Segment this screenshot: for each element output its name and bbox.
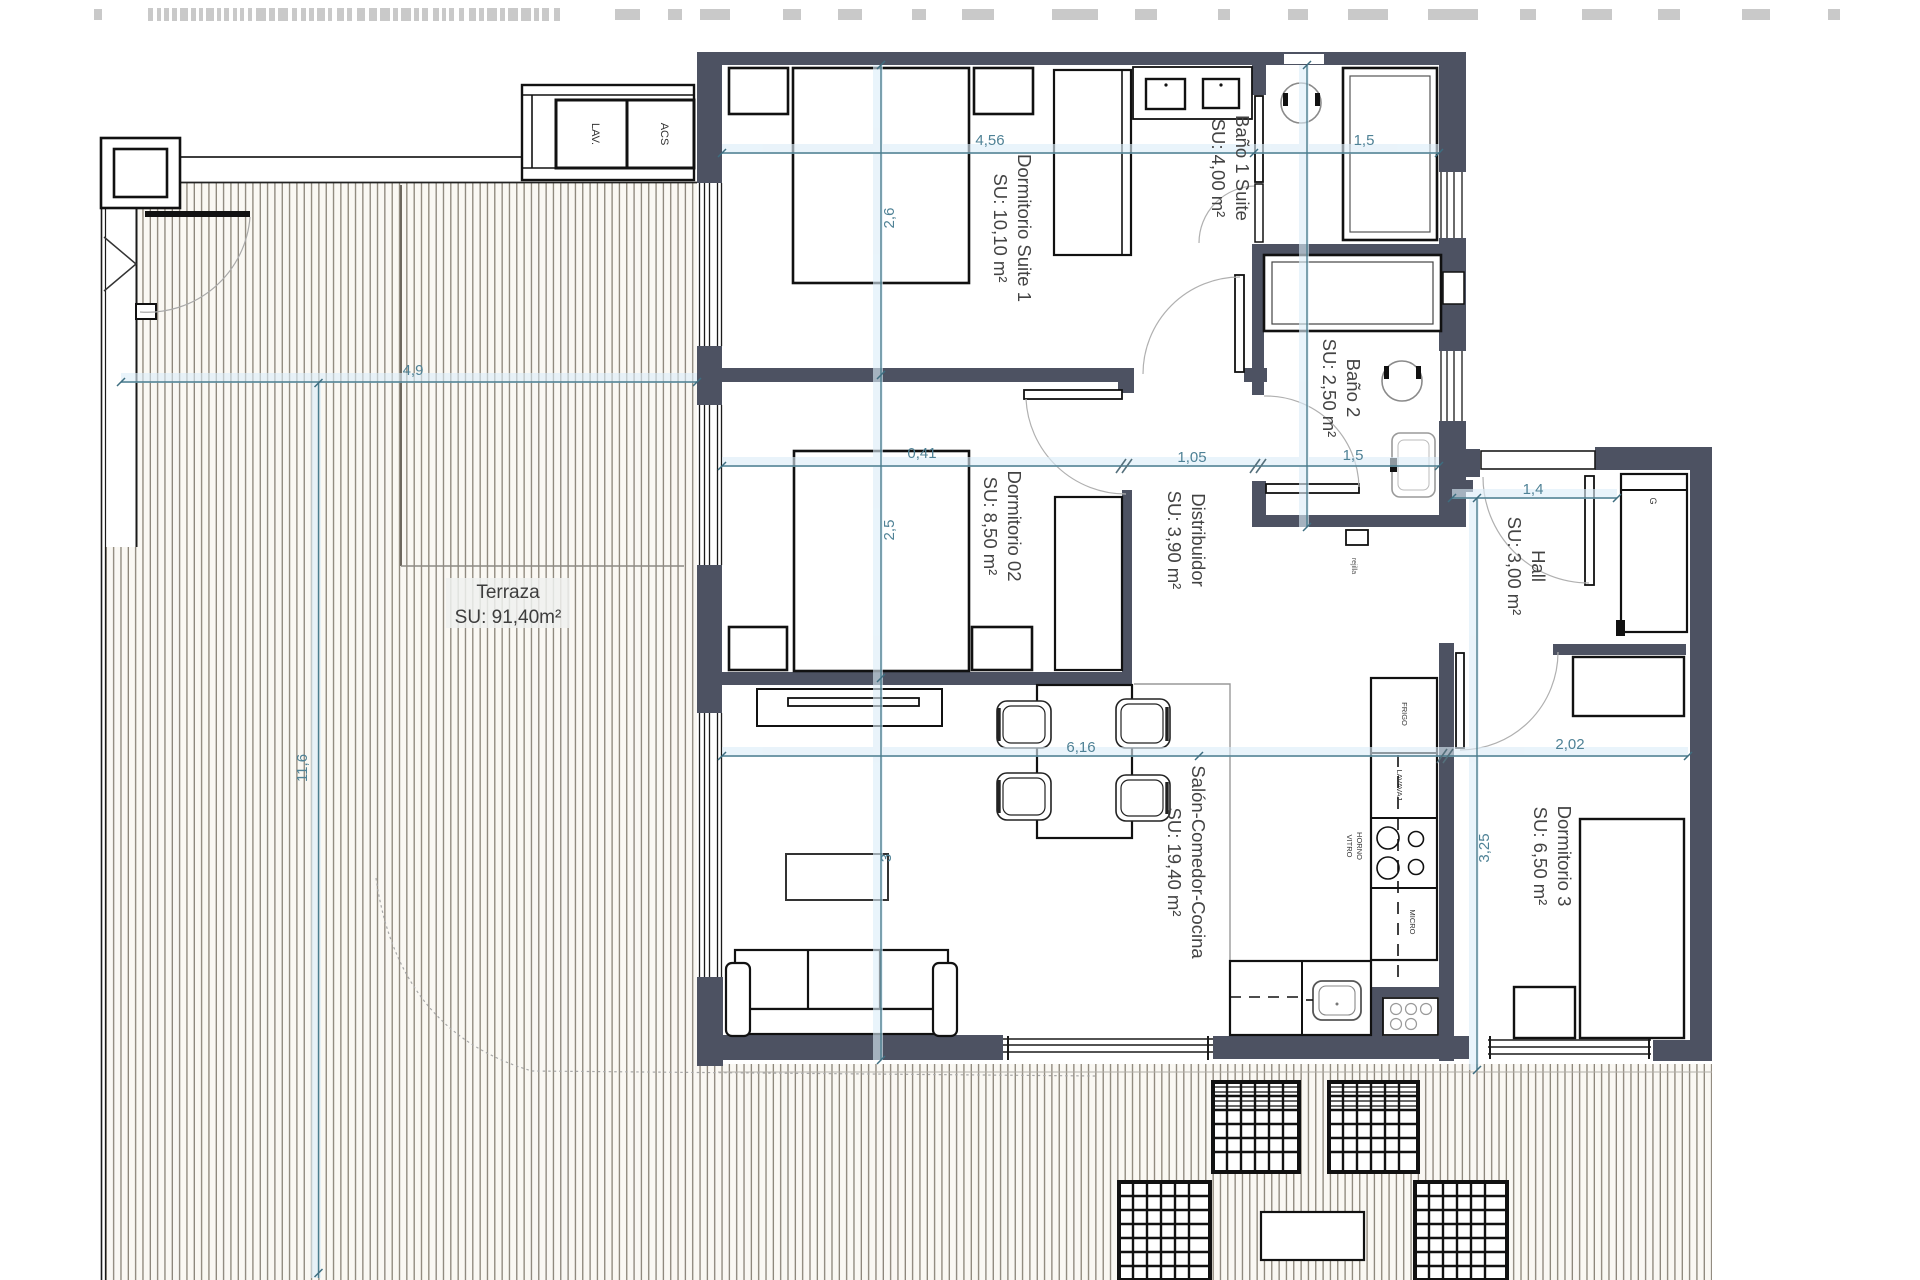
svg-text:SU: 3,90 m²: SU: 3,90 m² bbox=[1164, 491, 1185, 590]
svg-text:2,02: 2,02 bbox=[1555, 736, 1584, 753]
svg-text:rejilla: rejilla bbox=[1350, 558, 1357, 574]
svg-text:11,6: 11,6 bbox=[294, 754, 311, 782]
svg-text:3,25: 3,25 bbox=[1476, 833, 1493, 862]
svg-text:3: 3 bbox=[878, 854, 895, 862]
svg-text:MICRO: MICRO bbox=[1408, 910, 1417, 935]
svg-text:0,41: 0,41 bbox=[907, 445, 936, 462]
svg-text:Hall: Hall bbox=[1528, 550, 1549, 582]
svg-text:1,5: 1,5 bbox=[1343, 447, 1364, 464]
svg-text:6,16: 6,16 bbox=[1066, 739, 1095, 756]
svg-text:Dormitorio 3: Dormitorio 3 bbox=[1554, 806, 1575, 907]
svg-text:Terraza: Terraza bbox=[476, 582, 540, 603]
svg-text:1,4: 1,4 bbox=[1523, 481, 1544, 498]
svg-text:VITRO: VITRO bbox=[1345, 835, 1354, 858]
svg-text:SU: 3,00 m²: SU: 3,00 m² bbox=[1504, 517, 1525, 616]
svg-text:FRIGO: FRIGO bbox=[1400, 702, 1409, 726]
svg-text:Baño 2: Baño 2 bbox=[1343, 359, 1364, 418]
svg-text:4,9: 4,9 bbox=[403, 362, 424, 379]
svg-text:SU: 19,40 m²: SU: 19,40 m² bbox=[1164, 808, 1185, 917]
svg-text:Dormitorio 02: Dormitorio 02 bbox=[1004, 470, 1025, 581]
svg-text:G: G bbox=[1648, 497, 1658, 504]
svg-text:2,6: 2,6 bbox=[881, 208, 898, 229]
svg-text:1,05: 1,05 bbox=[1177, 449, 1206, 466]
svg-text:SU: 4,00 m²: SU: 4,00 m² bbox=[1208, 119, 1229, 218]
svg-text:4,56: 4,56 bbox=[975, 132, 1004, 149]
svg-text:SU: 91,40m²: SU: 91,40m² bbox=[455, 607, 562, 628]
svg-text:2,5: 2,5 bbox=[881, 520, 898, 541]
svg-text:HORNO: HORNO bbox=[1355, 832, 1364, 860]
svg-text:ACS: ACS bbox=[658, 123, 670, 146]
svg-text:LAV.: LAV. bbox=[589, 123, 601, 145]
svg-text:Distribuidor: Distribuidor bbox=[1188, 493, 1209, 587]
svg-text:SU: 2,50 m²: SU: 2,50 m² bbox=[1319, 339, 1340, 438]
svg-text:SU: 10,10 m²: SU: 10,10 m² bbox=[990, 174, 1011, 283]
svg-text:Salón-Comedor-Cocina: Salón-Comedor-Cocina bbox=[1188, 765, 1209, 959]
svg-text:1,5: 1,5 bbox=[1354, 132, 1375, 149]
svg-text:LAVAVAJ: LAVAVAJ bbox=[1395, 770, 1404, 801]
svg-text:Dormitorio Suite 1: Dormitorio Suite 1 bbox=[1014, 154, 1035, 302]
svg-text:SU: 6,50 m²: SU: 6,50 m² bbox=[1530, 807, 1551, 906]
svg-text:SU: 8,50 m²: SU: 8,50 m² bbox=[980, 477, 1001, 576]
svg-text:Baño 1 Suite: Baño 1 Suite bbox=[1232, 115, 1253, 221]
